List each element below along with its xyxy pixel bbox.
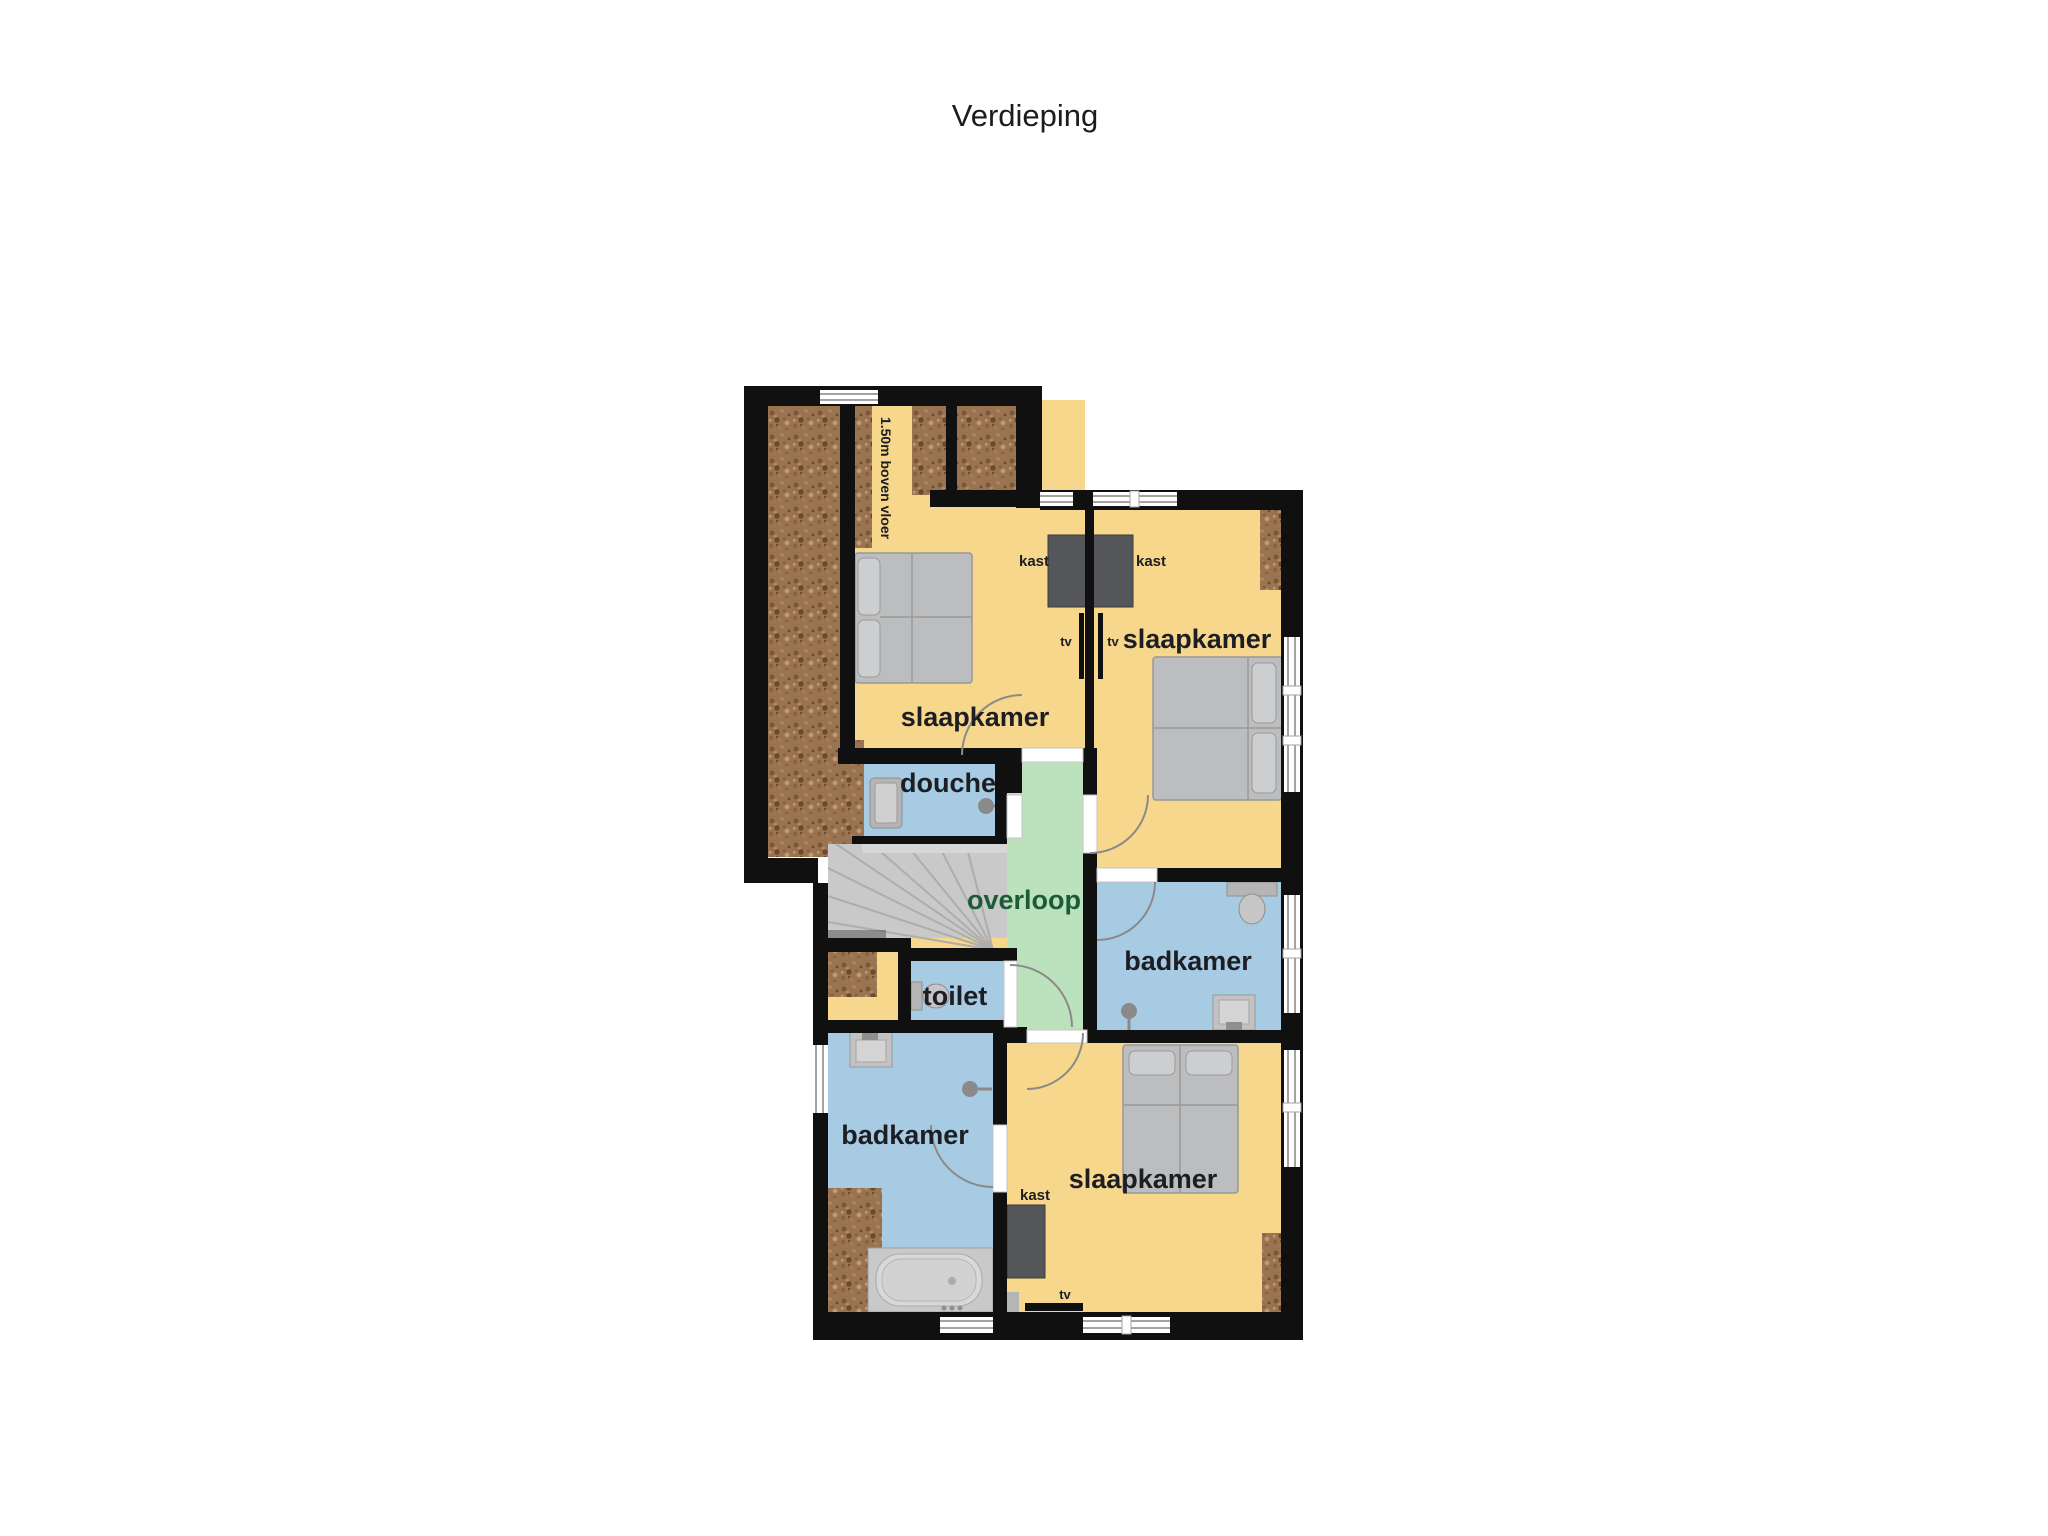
shower-column xyxy=(870,778,902,828)
label-bedroom-top-left: slaapkamer xyxy=(901,702,1050,732)
wall-bedroom-divider xyxy=(1085,505,1094,748)
opening-bathroom-left xyxy=(993,1125,1007,1192)
attic-strip-mid xyxy=(855,403,872,548)
wall-bathroom-right-bottom xyxy=(1092,1030,1281,1043)
sink-bathroom-left xyxy=(850,1032,892,1067)
wall-bathroom-left-right-lower xyxy=(993,1192,1007,1312)
tv-screen-bottom xyxy=(1025,1303,1083,1311)
page-title: Verdieping xyxy=(952,98,1099,133)
opening-bedroom3 xyxy=(1027,1030,1087,1043)
pillow xyxy=(1252,733,1276,793)
wall-shower-top xyxy=(838,748,1007,764)
bed-top-right xyxy=(1153,657,1282,800)
label-toilet: toilet xyxy=(923,981,988,1011)
attic-strip-left xyxy=(768,403,840,857)
wall-bottom xyxy=(813,1312,1303,1340)
window-right-bedroom3 xyxy=(1283,1050,1301,1167)
wall-shower-pier xyxy=(995,748,1022,793)
wall-toilet-top xyxy=(898,948,1017,961)
wall-under-stairs xyxy=(813,938,911,952)
floor-plan-canvas: Verdieping xyxy=(0,0,2048,1536)
tv-screen-right xyxy=(1098,613,1103,679)
label-tv-right: tv xyxy=(1107,634,1119,649)
sink-bathroom-right xyxy=(1213,995,1255,1030)
wall-bathroom-right-left xyxy=(1083,853,1097,1043)
label-bathroom-left: badkamer xyxy=(841,1120,969,1150)
window-right-bedroom2 xyxy=(1283,637,1301,792)
label-closet-top-right: kast xyxy=(1136,553,1166,570)
label-landing: overloop xyxy=(967,885,1081,915)
window-top-attic xyxy=(820,390,878,404)
label-closet-top-left: kast xyxy=(1019,553,1049,570)
attic-patch-bedroom3 xyxy=(1262,1233,1281,1312)
stairs-landing-strip xyxy=(862,844,1007,853)
window-left-bathroom xyxy=(812,1045,828,1113)
window-top-1 xyxy=(1040,492,1073,506)
wall-bathroom-left-right-upper xyxy=(993,1030,1007,1125)
opening-bathroom-right xyxy=(1097,868,1157,882)
opening-bedroom2 xyxy=(1083,795,1097,853)
wall-attic-divider xyxy=(840,398,855,750)
pillow xyxy=(858,620,880,677)
wall-shower-right xyxy=(995,793,1007,838)
window-top-2 xyxy=(1093,491,1177,507)
pillow xyxy=(858,558,880,615)
attic-strip-3 xyxy=(912,403,948,495)
wall-step xyxy=(744,858,818,883)
wall-left-upper xyxy=(744,386,768,883)
opening-shower xyxy=(1007,795,1022,838)
window-bottom-2 xyxy=(1083,1316,1170,1334)
pillow xyxy=(1252,663,1276,723)
opening-toilet xyxy=(1004,961,1017,1027)
label-tv-left: tv xyxy=(1060,634,1072,649)
attic-patch-hall xyxy=(828,952,877,997)
wall-block-right xyxy=(1016,386,1042,508)
label-shower-room: douche xyxy=(900,768,996,798)
pillow xyxy=(1129,1051,1175,1075)
bathtub xyxy=(868,1248,993,1312)
wall-landing-pier xyxy=(1083,748,1097,795)
wall-strip-divider xyxy=(946,398,957,498)
attic-patch-bedroom2 xyxy=(1260,508,1282,590)
label-knee-wall-note: 1.50m boven vloer xyxy=(878,417,894,540)
wall-bathroom-right-top xyxy=(1157,868,1281,882)
bed-top-left xyxy=(855,553,972,683)
stairs-shadow xyxy=(828,930,886,939)
wall-shower-bottom xyxy=(852,836,1007,844)
label-closet-bottom: kast xyxy=(1020,1187,1050,1204)
window-right-bathroom xyxy=(1283,895,1301,1013)
closet-bottom xyxy=(1007,1205,1045,1278)
tv-screen-left xyxy=(1079,613,1084,679)
attic-strip-4 xyxy=(957,403,1018,495)
label-bathroom-right: badkamer xyxy=(1124,946,1252,976)
wall-under-strips xyxy=(930,490,1040,507)
label-bedroom-top-right: slaapkamer xyxy=(1123,624,1272,654)
step-block xyxy=(1007,1292,1019,1312)
opening-bedroom1 xyxy=(1022,748,1083,762)
window-bottom-1 xyxy=(940,1317,993,1333)
pillow xyxy=(1186,1051,1232,1075)
wall-bathroom-left-top xyxy=(813,1020,1017,1033)
label-bedroom-bottom: slaapkamer xyxy=(1069,1164,1218,1194)
label-tv-bottom: tv xyxy=(1059,1287,1071,1302)
page: Verdieping xyxy=(0,0,2048,1536)
wall-top-block xyxy=(744,386,1040,406)
